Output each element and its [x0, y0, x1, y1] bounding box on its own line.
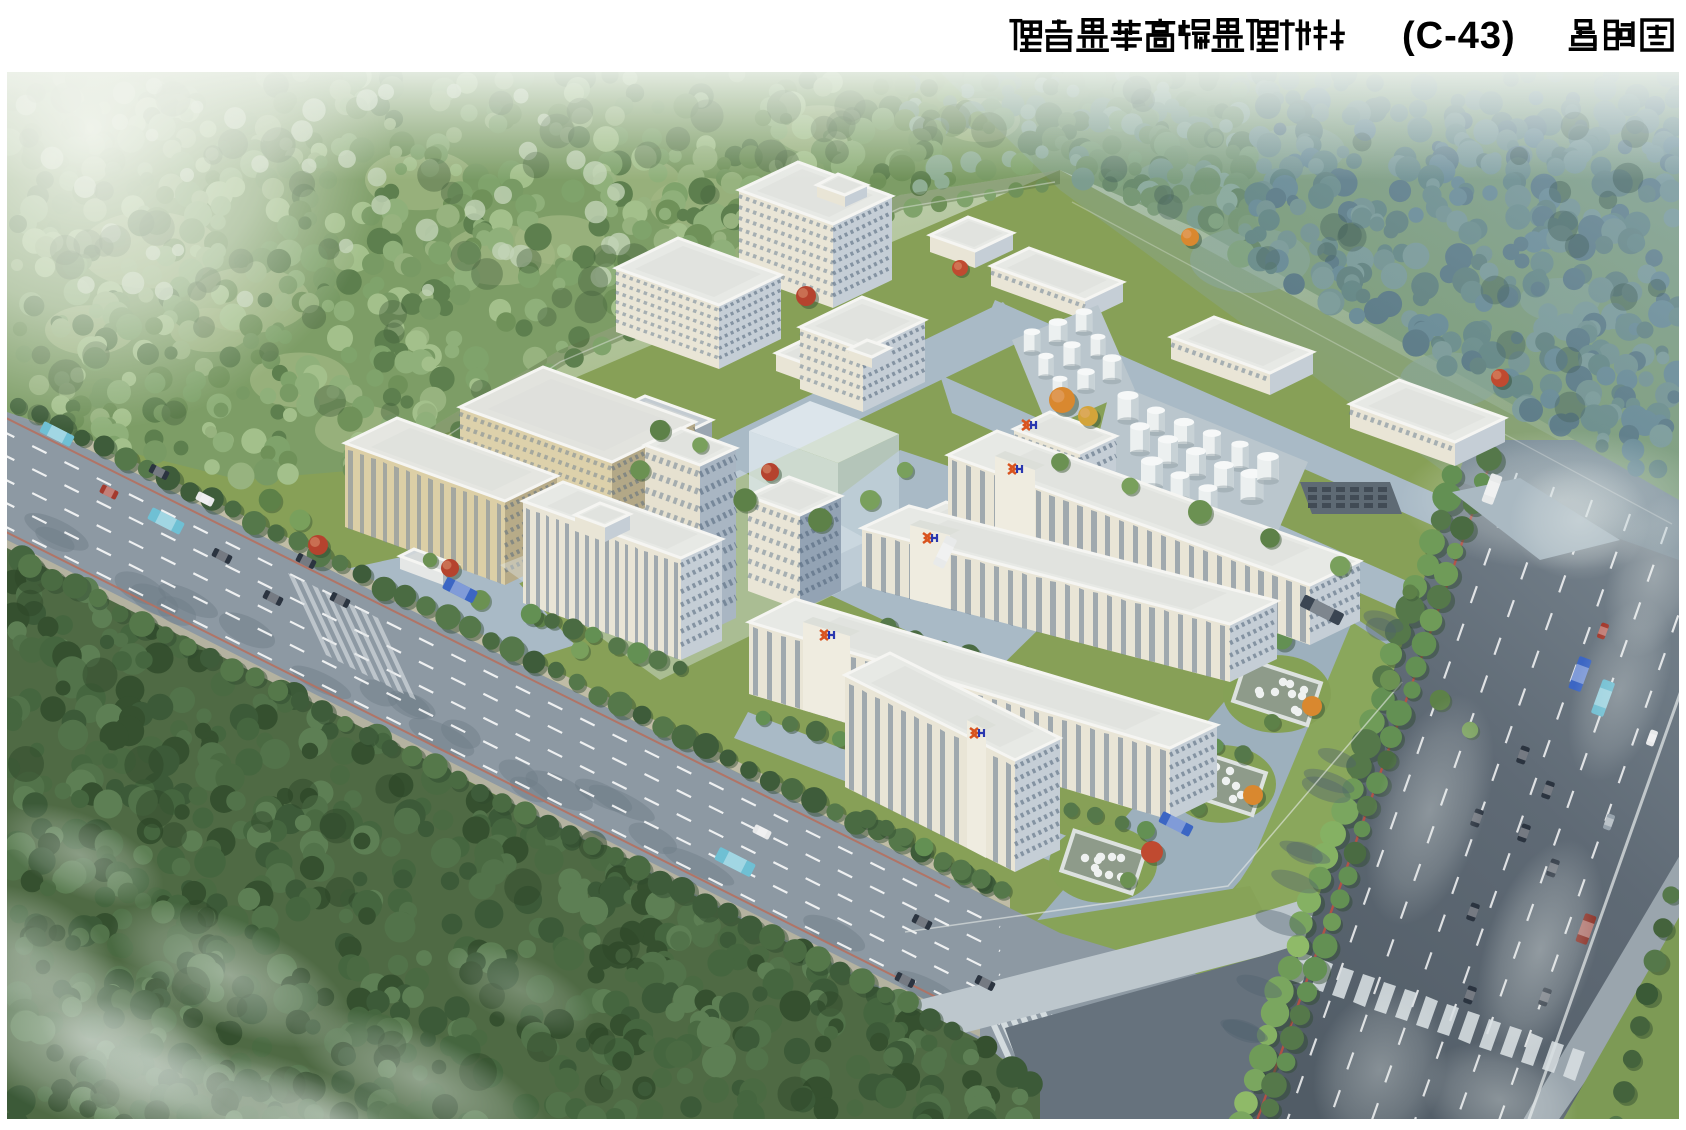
- svg-text:(C-43): (C-43): [1402, 15, 1516, 57]
